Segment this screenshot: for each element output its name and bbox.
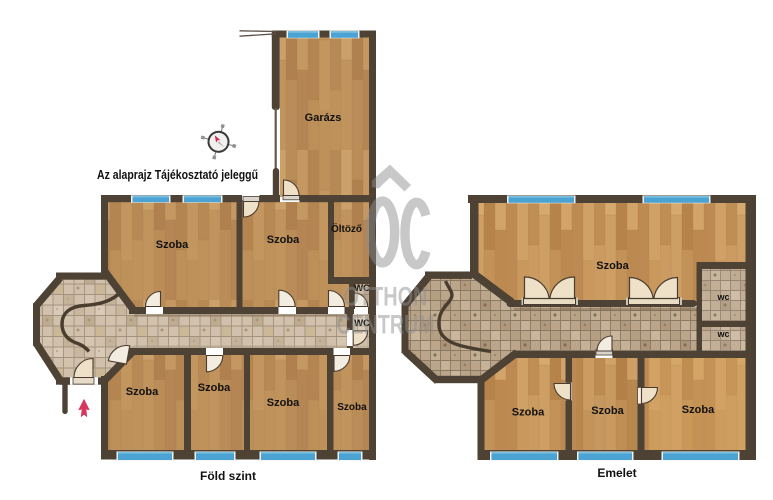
svg-text:Garázs: Garázs [305,112,342,124]
svg-text:Szoba: Szoba [126,386,159,398]
svg-text:CENTRUM: CENTRUM [337,310,435,340]
svg-text:Emelet: Emelet [597,466,636,480]
svg-text:Szoba: Szoba [198,382,231,394]
svg-text:Öltöző: Öltöző [331,222,362,235]
svg-text:Föld szint: Föld szint [200,469,256,483]
svg-text:Szoba: Szoba [267,397,300,409]
svg-text:Szoba: Szoba [337,402,367,413]
svg-text:wc: wc [716,329,729,339]
svg-text:Szoba: Szoba [156,239,189,251]
svg-text:Szoba: Szoba [596,260,629,272]
svg-text:OTTHON: OTTHON [344,282,428,312]
svg-text:Szoba: Szoba [682,404,715,416]
svg-text:Szoba: Szoba [512,407,545,419]
svg-text:Az alaprajz Tájékosztató jeleg: Az alaprajz Tájékosztató jeleggű [97,168,258,182]
svg-text:Szoba: Szoba [267,234,300,246]
svg-text:Szoba: Szoba [591,405,624,417]
svg-text:wc: wc [716,292,729,302]
